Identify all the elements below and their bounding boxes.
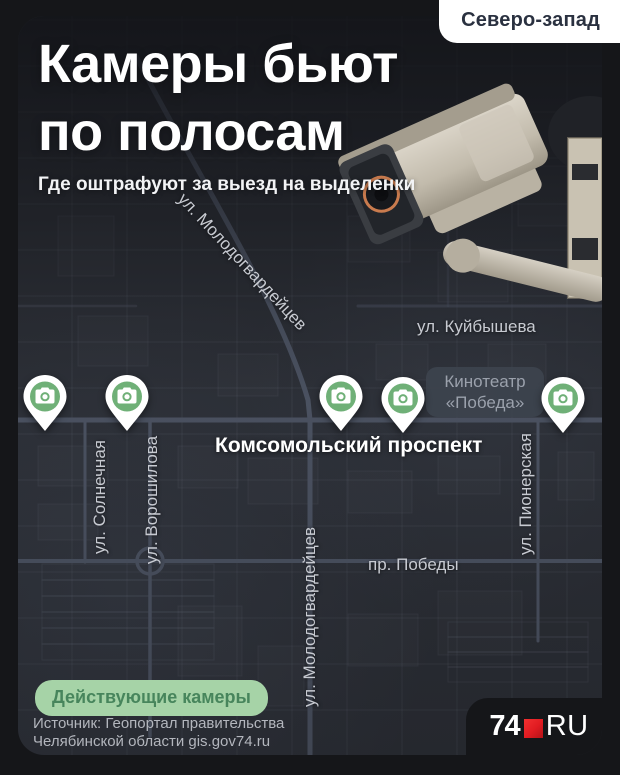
poi-cinema-line1: Кинотеатр (444, 371, 525, 392)
page-title-line1: Камеры бьют (38, 30, 415, 98)
poi-cinema-line2: «Победа» (446, 392, 525, 413)
logo-prefix: 74 (489, 710, 519, 743)
brand-logo-74ru: 74 RU (489, 710, 588, 743)
street-label-pionerskaya: ул. Пионерская (516, 433, 536, 555)
region-badge: Северо-запад (439, 0, 620, 43)
camera-pin-icon (319, 375, 363, 432)
infographic: ул. Молодогвардейцев ул. Куйбышева Комсо… (0, 0, 620, 775)
map-panel: ул. Молодогвардейцев ул. Куйбышева Комсо… (18, 16, 602, 755)
street-label-kuybysheva: ул. Куйбышева (417, 317, 536, 337)
street-label-komsomolsky-prospekt: Комсомольский проспект (215, 434, 482, 458)
logo-suffix: RU (546, 710, 589, 743)
street-label-solnechnaya: ул. Солнечная (90, 440, 110, 554)
page-title-line2: по полосам (38, 98, 415, 166)
source-attribution: Источник: Геопортал правительства Челяби… (33, 715, 284, 751)
source-line2: Челябинской области gis.gov74.ru (33, 733, 284, 751)
camera-pin-icon (23, 375, 67, 432)
camera-pin-icon (381, 377, 425, 434)
legend-active-cameras-badge: Действующие камеры (35, 680, 268, 716)
source-line1: Источник: Геопортал правительства (33, 715, 284, 733)
title-block: Камеры бьют по полосам Где оштрафуют за … (38, 30, 415, 196)
camera-pin-icon (105, 375, 149, 432)
street-label-pobedy: пр. Победы (368, 555, 459, 575)
logo-red-square-icon (524, 719, 543, 738)
page-subtitle: Где оштрафуют за выезд на выделенки (38, 174, 415, 196)
camera-pin-icon (541, 377, 585, 434)
street-label-voroshilova: ул. Ворошилова (142, 436, 162, 564)
logo-notch: 74 RU (466, 698, 602, 755)
poi-cinema-pobeda: Кинотеатр «Победа» (426, 367, 544, 417)
street-label-molodogvardeytsev-vertical: ул. Молодогвардейцев (300, 527, 320, 707)
